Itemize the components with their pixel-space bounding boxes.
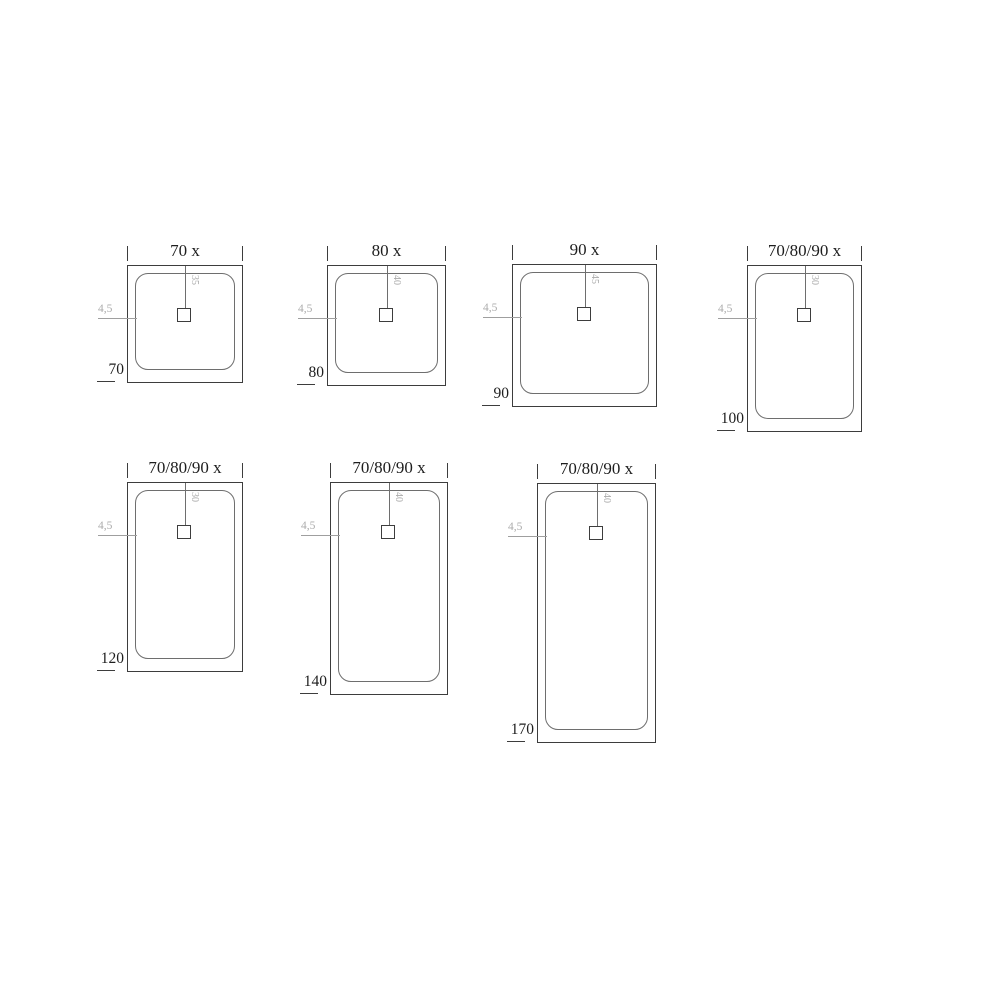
length-dimension-tick bbox=[297, 384, 315, 385]
drain-square bbox=[797, 308, 811, 322]
rim-thickness-label: 4,5 bbox=[98, 302, 124, 317]
length-dimension-label: 170 bbox=[498, 721, 534, 739]
drain-offset-label: 35 bbox=[187, 275, 201, 305]
drain-dimension-line bbox=[805, 266, 806, 308]
length-dimension-tick bbox=[97, 670, 115, 671]
tray-diagram: 70/80/90 x 30 4,5 120 bbox=[127, 482, 243, 672]
width-dimension-label: 80 x bbox=[314, 241, 459, 261]
length-dimension-tick bbox=[300, 693, 318, 694]
rim-thickness-label: 4,5 bbox=[508, 520, 534, 535]
rim-leader-line bbox=[301, 535, 340, 536]
drain-square bbox=[589, 526, 603, 540]
width-dimension-label: 70/80/90 x bbox=[734, 241, 875, 261]
drain-dimension-line bbox=[389, 483, 390, 525]
length-dimension-label: 90 bbox=[473, 385, 509, 403]
drain-offset-label: 30 bbox=[187, 492, 201, 522]
drain-dimension-line bbox=[387, 266, 388, 308]
drain-dimension-line bbox=[585, 265, 586, 307]
drain-offset-label: 40 bbox=[391, 492, 405, 522]
length-dimension-label: 120 bbox=[88, 650, 124, 668]
drain-offset-label: 30 bbox=[807, 275, 821, 305]
drain-dimension-line bbox=[185, 483, 186, 525]
length-dimension-label: 70 bbox=[88, 361, 124, 379]
rim-leader-line bbox=[718, 318, 757, 319]
length-dimension-tick bbox=[507, 741, 525, 742]
length-dimension-tick bbox=[97, 381, 115, 382]
rim-thickness-label: 4,5 bbox=[483, 301, 509, 316]
length-dimension-label: 140 bbox=[291, 673, 327, 691]
rim-leader-line bbox=[98, 535, 137, 536]
rim-thickness-label: 4,5 bbox=[718, 302, 744, 317]
tray-diagram: 70/80/90 x 40 4,5 170 bbox=[537, 483, 656, 743]
width-dimension-label: 70/80/90 x bbox=[524, 459, 669, 479]
tray-diagram: 70/80/90 x 30 4,5 100 bbox=[747, 265, 862, 432]
tray-diagram: 70 x 35 4,5 70 bbox=[127, 265, 243, 383]
drain-square bbox=[379, 308, 393, 322]
rim-leader-line bbox=[298, 318, 337, 319]
rim-thickness-label: 4,5 bbox=[301, 519, 327, 534]
drain-square bbox=[177, 525, 191, 539]
drain-dimension-line bbox=[185, 266, 186, 308]
drain-offset-label: 40 bbox=[389, 275, 403, 305]
width-dimension-label: 70/80/90 x bbox=[114, 458, 256, 478]
width-dimension-label: 90 x bbox=[499, 240, 670, 260]
width-dimension-label: 70/80/90 x bbox=[317, 458, 461, 478]
drain-square bbox=[577, 307, 591, 321]
tray-diagram: 90 x 45 4,5 90 bbox=[512, 264, 657, 407]
tray-diagram: 70/80/90 x 40 4,5 140 bbox=[330, 482, 448, 695]
width-dimension-label: 70 x bbox=[114, 241, 256, 261]
length-dimension-label: 80 bbox=[288, 364, 324, 382]
drain-offset-label: 45 bbox=[587, 274, 601, 304]
drain-dimension-line bbox=[597, 484, 598, 526]
rim-thickness-label: 4,5 bbox=[298, 302, 324, 317]
rim-thickness-label: 4,5 bbox=[98, 519, 124, 534]
rim-leader-line bbox=[483, 317, 522, 318]
length-dimension-tick bbox=[717, 430, 735, 431]
rim-leader-line bbox=[508, 536, 547, 537]
drain-offset-label: 40 bbox=[599, 493, 613, 523]
tray-diagram: 80 x 40 4,5 80 bbox=[327, 265, 446, 386]
dimension-drawing-canvas: 70 x 35 4,5 70 80 x 40 4,5 80 90 x 45 4,… bbox=[0, 0, 1000, 1000]
length-dimension-tick bbox=[482, 405, 500, 406]
drain-square bbox=[177, 308, 191, 322]
rim-leader-line bbox=[98, 318, 137, 319]
drain-square bbox=[381, 525, 395, 539]
length-dimension-label: 100 bbox=[708, 410, 744, 428]
